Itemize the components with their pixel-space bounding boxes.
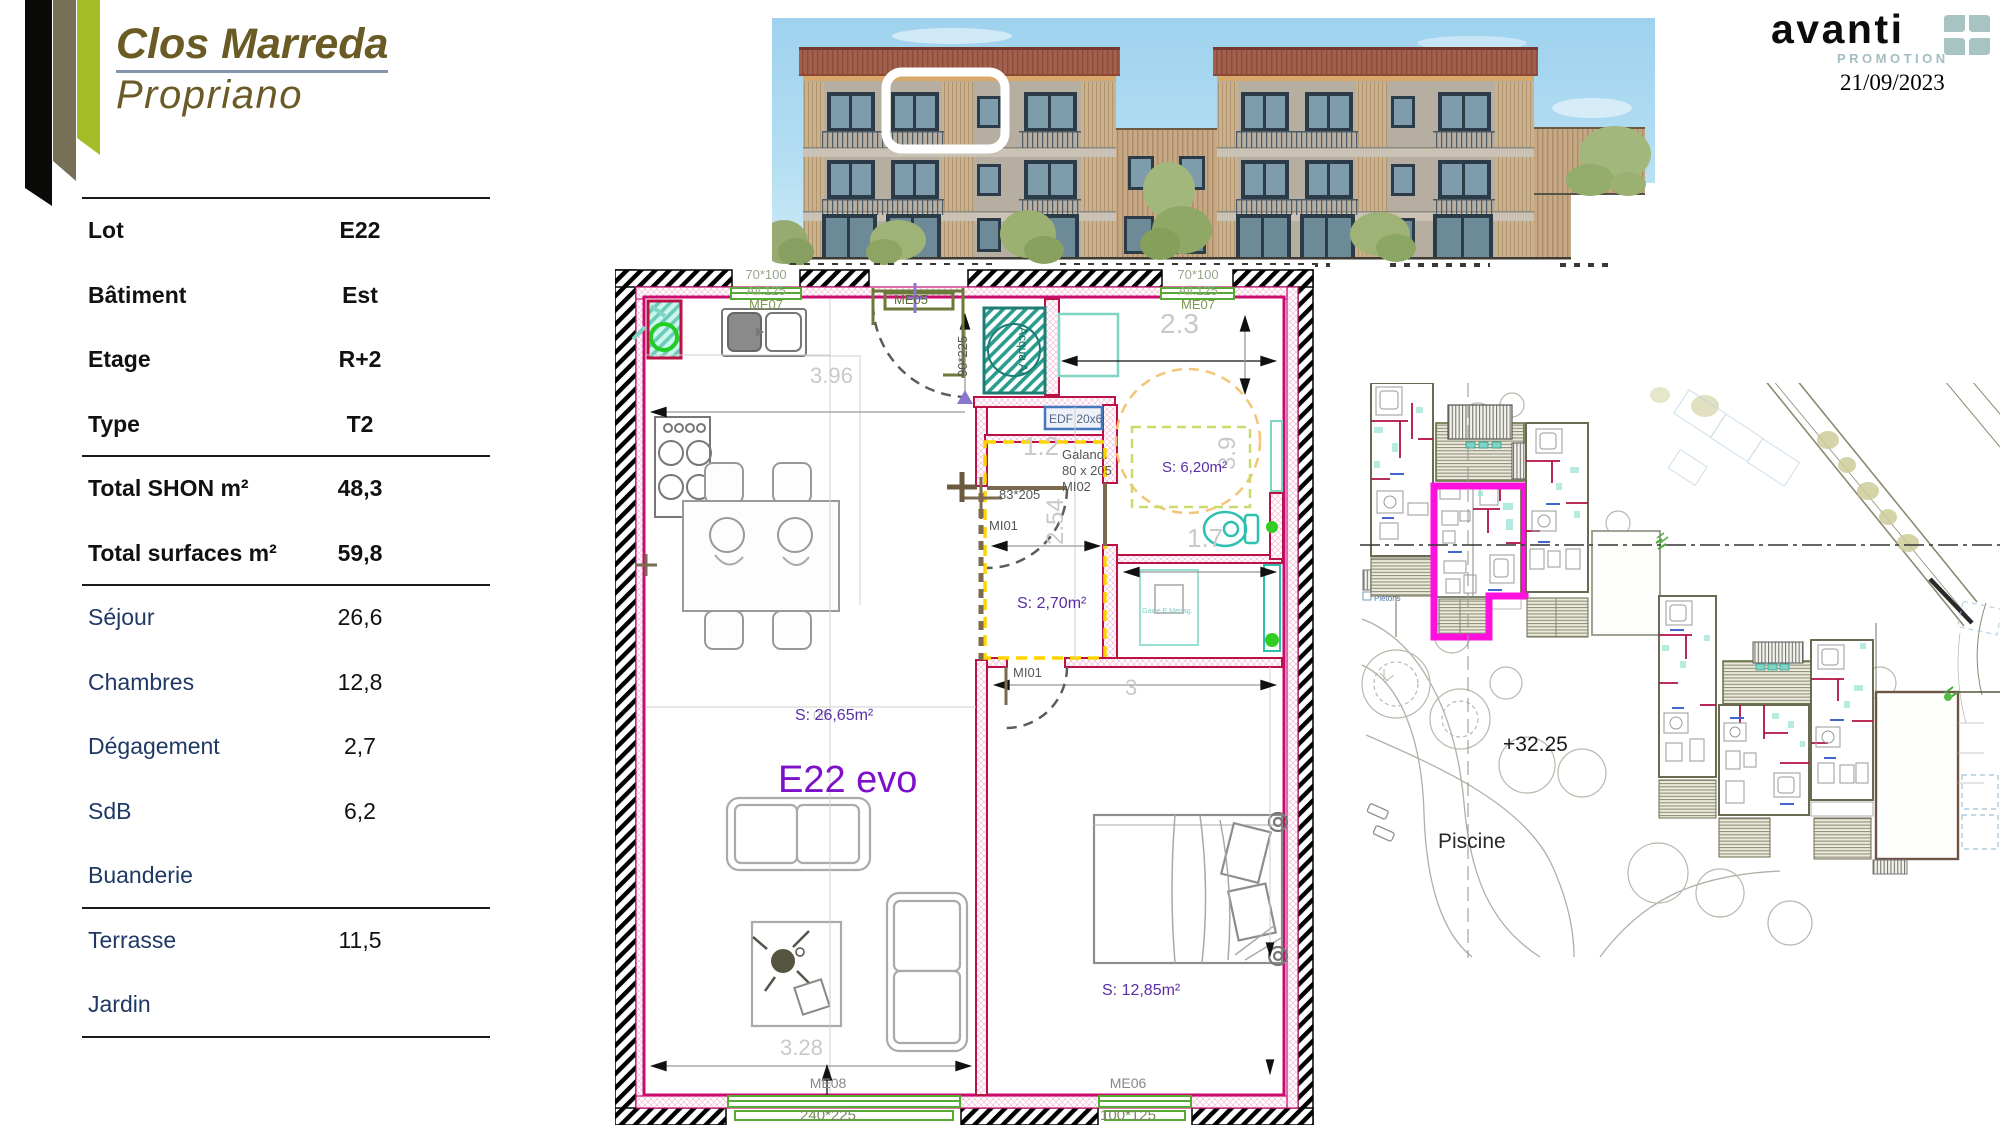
- svg-text:90*225: 90*225: [955, 336, 970, 377]
- svg-text:S: 2,70m²: S: 2,70m²: [1017, 595, 1087, 612]
- svg-text:240*225: 240*225: [800, 1107, 856, 1124]
- svg-text:E22 evo: E22 evo: [778, 759, 917, 801]
- svg-text:70*100: 70*100: [745, 267, 786, 282]
- svg-text:Galand.: Galand.: [1062, 447, 1108, 462]
- svg-text:ME06: ME06: [1110, 1075, 1147, 1091]
- svg-text:Piscine: Piscine: [1438, 830, 1506, 853]
- svg-text:ME08: ME08: [810, 1075, 847, 1091]
- svg-text:1.2: 1.2: [1023, 431, 1059, 461]
- svg-text:MI02: MI02: [1062, 479, 1091, 494]
- svg-text:MI01: MI01: [1013, 665, 1042, 680]
- svg-text:ME07: ME07: [749, 297, 783, 312]
- svg-text:2.3: 2.3: [1160, 308, 1199, 339]
- svg-text:+32.25: +32.25: [1503, 733, 1568, 756]
- svg-text:3: 3: [1125, 675, 1137, 700]
- svg-text:1.7: 1.7: [1187, 523, 1223, 553]
- svg-text:All.125: All.125: [746, 283, 786, 298]
- svg-text:83*205: 83*205: [999, 487, 1040, 502]
- svg-text:100*125: 100*125: [1100, 1107, 1156, 1124]
- svg-text:EDF 20x6: EDF 20x6: [1049, 412, 1103, 426]
- svg-text:80 x 205: 80 x 205: [1062, 463, 1112, 478]
- svg-text:70*100: 70*100: [1177, 267, 1218, 282]
- svg-text:2.54: 2.54: [1042, 498, 1069, 545]
- svg-text:S: 26,65m²: S: 26,65m²: [795, 707, 874, 724]
- svg-text:Gaine E.Menag.: Gaine E.Menag.: [1142, 608, 1193, 615]
- svg-text:MI01: MI01: [989, 518, 1018, 533]
- svg-text:All.125: All.125: [1178, 283, 1218, 298]
- svg-text:Acqua Ai: Acqua Ai: [1016, 327, 1030, 374]
- svg-text:S: 6,20m²: S: 6,20m²: [1162, 459, 1227, 476]
- svg-text:S: 12,85m²: S: 12,85m²: [1102, 982, 1181, 999]
- svg-text:ME05: ME05: [894, 292, 928, 307]
- svg-text:3.96: 3.96: [810, 363, 853, 388]
- svg-text:3.28: 3.28: [780, 1035, 823, 1060]
